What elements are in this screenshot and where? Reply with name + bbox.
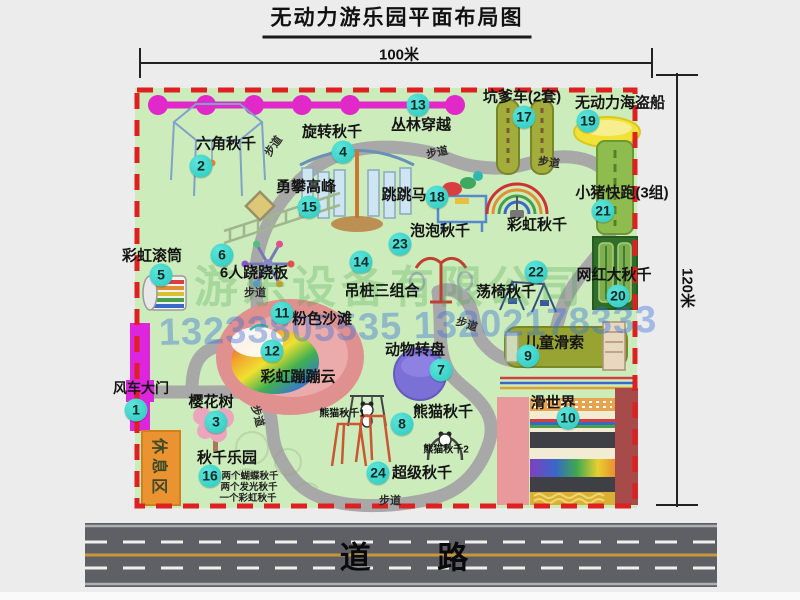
item-badge-11: 11 <box>271 302 294 325</box>
item-badge-9: 9 <box>517 345 540 368</box>
item-badge-4: 4 <box>332 141 355 164</box>
item-badge-12: 12 <box>261 340 284 363</box>
item-label-7: 动物转盘 <box>385 339 445 360</box>
rainbow-swing-label: 彩虹秋千 <box>507 214 567 235</box>
path-label-6: 步道 <box>379 492 401 508</box>
item-label-13: 丛林穿越 <box>391 114 451 135</box>
item-label-4: 旋转秋千 <box>302 121 362 142</box>
item-badge-10: 10 <box>557 407 580 430</box>
panda-swing-1-label: 熊猫秋千1 <box>319 405 365 420</box>
item-label-17: 坑爹车(2套) <box>483 86 561 107</box>
item-badge-2: 2 <box>190 155 213 178</box>
item-label-2: 六角秋千 <box>196 133 256 154</box>
item-badge-18: 18 <box>426 186 449 209</box>
item-badge-19: 19 <box>577 110 600 133</box>
item-badge-14: 14 <box>350 251 373 274</box>
item-badge-6: 6 <box>211 244 234 267</box>
item-badge-17: 17 <box>513 106 536 129</box>
path-label-2: 步道 <box>537 153 561 172</box>
item-badge-20: 20 <box>607 285 630 308</box>
item-badge-21: 21 <box>592 200 615 223</box>
item-label-21: 小猪快跑(3组) <box>575 182 668 203</box>
park-layout-map: 游乐设备有限公司 13233805535 13202178333 无动力游乐园平… <box>0 0 800 600</box>
item-label-14: 吊桩三组合 <box>344 280 419 301</box>
item-label-11: 粉色沙滩 <box>292 308 352 329</box>
road-label: 道 路 <box>340 533 469 578</box>
item-label-22: 荡椅秋千 <box>476 281 536 302</box>
item-label-5: 彩虹滚筒 <box>122 245 182 266</box>
item-badge-1: 1 <box>125 399 148 422</box>
width-dimension-label: 100米 <box>379 44 419 65</box>
item-label-18: 跳跳马 <box>381 184 426 205</box>
path-label-3: 步道 <box>244 284 266 300</box>
swing-park-note-2: 一个彩虹秋千 <box>219 490 276 504</box>
bottom-margin <box>0 592 800 600</box>
rest-area-label: 休息区 <box>149 438 173 498</box>
item-badge-5: 5 <box>150 264 173 287</box>
item-label-6: 6人跷跷板 <box>220 262 288 283</box>
item-badge-15: 15 <box>298 196 321 219</box>
item-label-15: 勇攀高峰 <box>276 176 336 197</box>
height-dimension-label: 120米 <box>678 268 699 308</box>
item-badge-3: 3 <box>205 411 228 434</box>
panda-swing-2-label: 熊猫秋千2 <box>423 441 469 456</box>
item-badge-7: 7 <box>430 359 453 382</box>
page-title: 无动力游乐园平面布局图 <box>263 2 532 39</box>
item-badge-23: 23 <box>389 233 412 256</box>
item-badge-13: 13 <box>407 94 430 117</box>
item-label-24: 超级秋千 <box>392 462 452 483</box>
item-label-20: 网红大秋千 <box>576 264 651 285</box>
item-badge-24: 24 <box>367 462 390 485</box>
item-badge-8: 8 <box>391 413 414 436</box>
item-label-8: 熊猫秋千 <box>413 401 473 422</box>
item-badge-16: 16 <box>199 465 222 488</box>
item-label-3: 樱花树 <box>188 391 233 412</box>
item-label-1: 风车大门 <box>113 378 169 398</box>
item-label-23: 泡泡秋千 <box>410 220 470 241</box>
item-label-12: 彩虹蹦蹦云 <box>260 366 335 387</box>
item-badge-22: 22 <box>525 261 548 284</box>
